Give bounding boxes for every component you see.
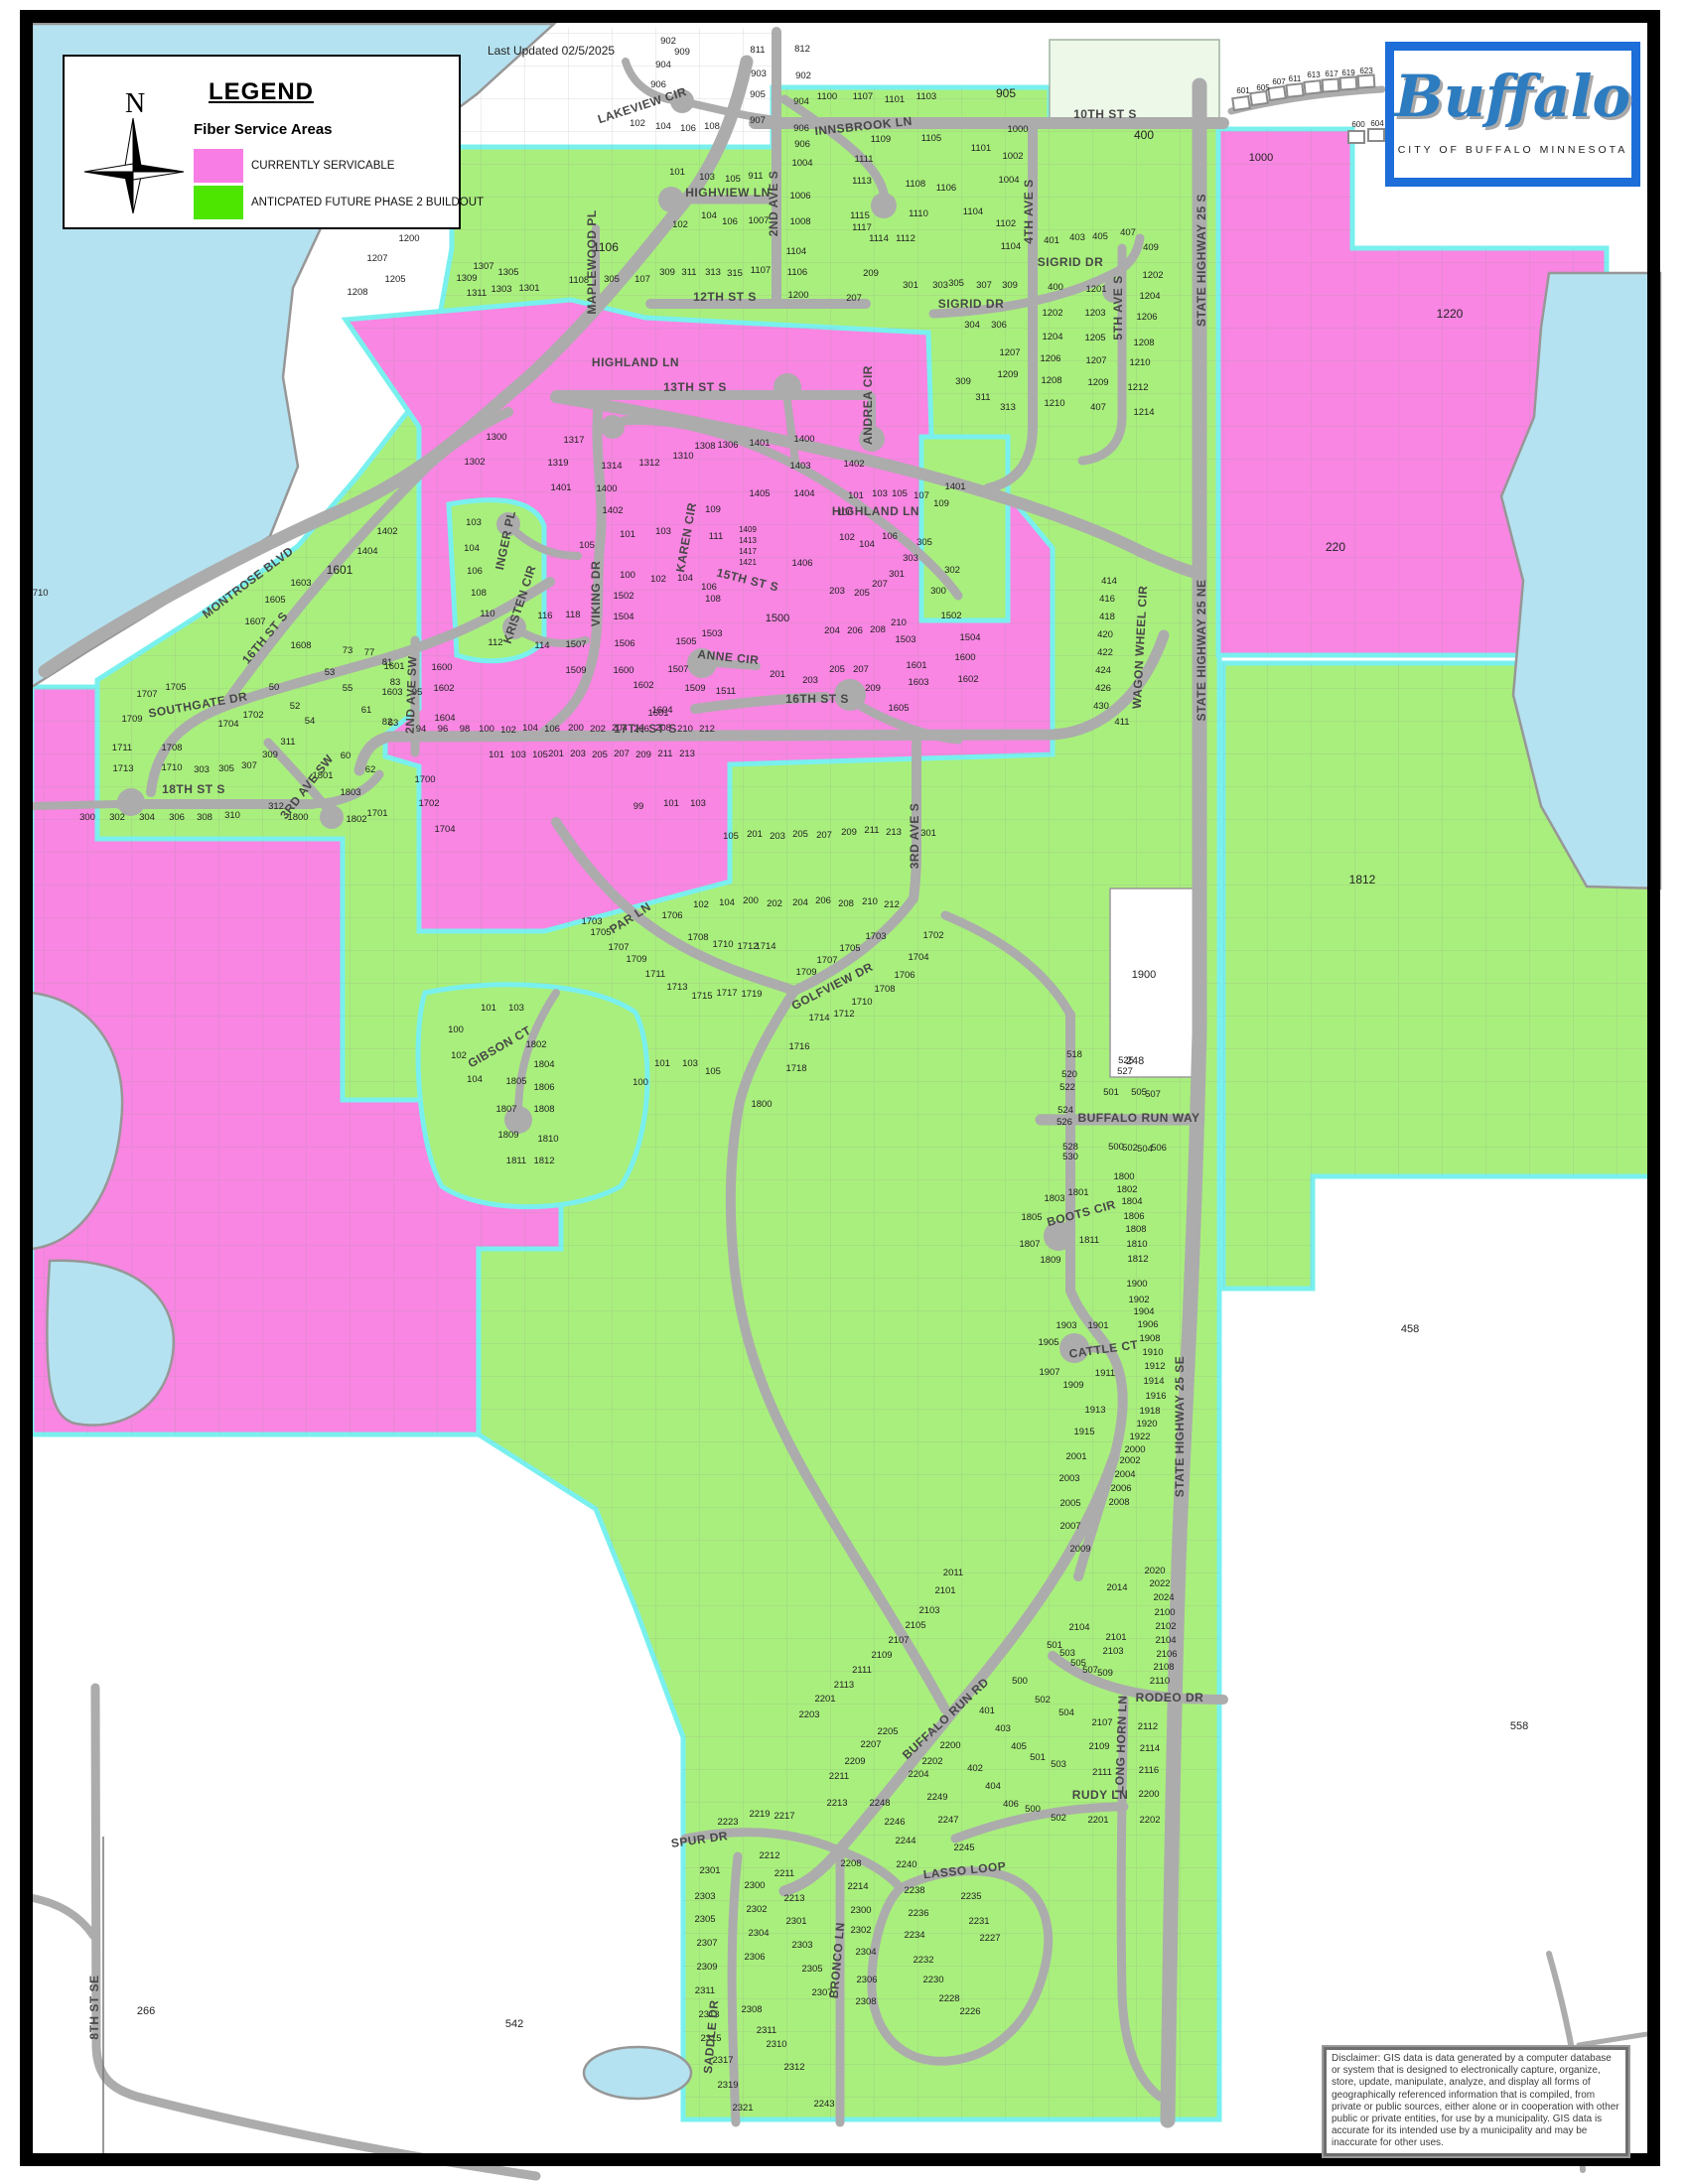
parcel-label: 1805: [1021, 1212, 1042, 1223]
parcel-label: 1117: [852, 222, 872, 233]
parcel-label: 401: [1044, 235, 1059, 246]
parcel-label: 1111: [854, 154, 873, 165]
parcel-label: 98: [460, 724, 471, 735]
parcel-label: 104: [719, 897, 735, 908]
parcel-label: 2243: [813, 2099, 834, 2110]
parcel-label: 1000: [1249, 152, 1273, 164]
parcel-label: 1101: [885, 94, 905, 105]
parcel-label: 522: [1059, 1082, 1075, 1093]
parcel-label: 1603: [381, 687, 402, 698]
parcel-label: 111: [709, 531, 723, 542]
parcel-label: 2311: [695, 1985, 715, 1996]
parcel-label: 118: [565, 610, 580, 620]
parcel-label: 1404: [793, 488, 814, 499]
area-white-pocket: [1110, 888, 1197, 1077]
parcel-label: 100: [620, 570, 635, 581]
parcel-label: 102: [630, 118, 645, 129]
parcel-label: 313: [705, 267, 721, 278]
parcel-label: 301: [903, 280, 918, 291]
parcel-label: 1802: [525, 1039, 546, 1050]
parcel-label: 2100: [1154, 1607, 1175, 1618]
parcel-label: 1812: [533, 1156, 554, 1166]
parcel-label: 1709: [121, 714, 142, 725]
parcel-label: 1207: [999, 347, 1020, 358]
parcel-label: 104: [522, 723, 538, 734]
parcel-label: 101: [481, 1003, 496, 1014]
parcel-label: 1406: [791, 558, 812, 569]
street-label: STATE HIGHWAY 25 NE: [1195, 579, 1208, 721]
parcel-label: 1602: [957, 674, 978, 685]
parcel-label: 1309: [456, 273, 477, 284]
street-label: SIGRID DR: [938, 297, 1005, 311]
parcel-label: 62: [365, 764, 376, 775]
parcel-label: 2211: [829, 1771, 849, 1782]
parcel-label: 1214: [1133, 407, 1154, 418]
parcel-label: 1710: [27, 588, 48, 599]
parcel-label: 206: [847, 625, 863, 636]
parcel-label: 73: [343, 645, 353, 656]
parcel-label: 248: [1126, 1055, 1144, 1067]
parcel-label: 1311: [467, 288, 487, 299]
parcel-label: 305: [218, 763, 234, 774]
parcel-label: 1114: [869, 233, 889, 244]
parcel-label: 905: [750, 89, 766, 100]
parcel-label: 2014: [1106, 1582, 1127, 1593]
legend-label-future: ANTICPATED FUTURE PHASE 2 BUILDOUT: [251, 197, 484, 208]
parcel-label: 220: [1326, 540, 1345, 554]
parcel-label: 103: [466, 517, 482, 528]
parcel-label: 103: [872, 488, 888, 499]
parcel-label: 600: [1351, 120, 1365, 129]
parcel-label: 2219: [749, 1809, 770, 1820]
parcel-label: 1717: [716, 988, 737, 999]
parcel-label: 1704: [217, 719, 238, 730]
parcel-label: 2007: [1059, 1521, 1080, 1532]
parcel-label: 1901: [1087, 1320, 1108, 1331]
parcel-label: 1401: [944, 481, 965, 492]
parcel-label: 1916: [1145, 1391, 1166, 1402]
parcel-label: 1705: [165, 682, 186, 693]
parcel-label: 2217: [774, 1811, 794, 1822]
parcel-label: 1706: [894, 970, 914, 981]
parcel-label: 105: [579, 540, 595, 551]
parcel-label: 1209: [1087, 377, 1108, 388]
street-label: VIKING DR: [589, 561, 603, 627]
parcel-label: 501: [1030, 1752, 1046, 1763]
parcel-label: 812: [794, 44, 810, 55]
parcel-label: 1109: [871, 134, 891, 145]
parcel-label: 2321: [732, 2103, 753, 2114]
parcel-label: 1913: [1084, 1405, 1105, 1416]
parcel-label: 1714: [755, 941, 775, 952]
parcel-label: 1312: [638, 458, 659, 469]
parcel-label: 1705: [590, 927, 611, 938]
parcel-label: 101: [654, 1058, 670, 1069]
street-label: 12TH ST S: [693, 290, 757, 304]
parcel-label: 1702: [418, 798, 439, 809]
parcel-label: 2308: [855, 1996, 876, 2007]
parcel-label: 2238: [904, 1885, 924, 1896]
parcel-label: 2245: [953, 1843, 974, 1853]
parcel-label: 201: [548, 749, 564, 759]
parcel-label: 1413: [739, 536, 757, 545]
parcel-label: 1317: [563, 435, 584, 446]
parcel-label: 904: [793, 96, 809, 107]
parcel-label: 1004: [998, 175, 1019, 186]
parcel-label: 201: [747, 829, 763, 840]
pond-south: [584, 2047, 691, 2099]
parcel-label: 903: [751, 68, 767, 79]
parcel-label: 106: [680, 123, 696, 134]
parcel-label: 101: [489, 750, 504, 760]
parcel-label: 1706: [661, 910, 682, 921]
parcel-label: 619: [1341, 68, 1355, 77]
parcel-label: 212: [884, 899, 900, 910]
parcel-label: 1503: [701, 628, 722, 639]
parcel-label: 1808: [533, 1104, 554, 1115]
parcel-label: 500: [1012, 1676, 1028, 1687]
parcel-label: 54: [305, 716, 316, 727]
parcel-label: 2005: [1059, 1498, 1080, 1509]
disclaimer-box: Disclaimer: GIS data is data generated b…: [1324, 2047, 1628, 2156]
parcel-label: 601: [1236, 86, 1250, 95]
parcel-label: 1601: [327, 563, 353, 577]
parcel-label: 509: [1097, 1668, 1113, 1679]
parcel-label: 1804: [1121, 1196, 1142, 1207]
parcel-label: 210: [862, 896, 878, 907]
parcel-label: 2208: [840, 1858, 861, 1869]
parcel-label: 266: [137, 2005, 155, 2017]
parcel-label: 213: [679, 749, 695, 759]
parcel-label: 2200: [1138, 1789, 1159, 1800]
street-label: 17TH ST S: [614, 722, 677, 736]
parcel-label: 2248: [869, 1798, 890, 1809]
parcel-label: 1306: [717, 440, 738, 451]
parcel-label: 1319: [547, 458, 568, 469]
parcel-label: 1006: [789, 191, 810, 202]
street-label: 2ND AVE S: [767, 171, 780, 237]
parcel-label: 2309: [696, 1962, 717, 1973]
parcel-label: 1812: [1349, 873, 1376, 887]
parcel-label: 400: [1048, 282, 1063, 293]
map-canvas[interactable]: 9029049069091021041061088118129039029059…: [0, 0, 1688, 2184]
parcel-label: 104: [464, 543, 480, 554]
parcel-label: 2200: [939, 1740, 960, 1751]
parcel-label: 1718: [785, 1063, 806, 1074]
parcel-label: 1104: [1001, 241, 1021, 252]
parcel-label: 2020: [1144, 1566, 1165, 1576]
parcel-label: 1711: [645, 969, 665, 980]
parcel-label: 1205: [384, 274, 405, 285]
parcel-label: 1900: [1132, 969, 1156, 981]
parcel-label: 1800: [751, 1099, 772, 1110]
parcel-label: 1600: [431, 662, 452, 673]
parcel-label: 61: [361, 705, 372, 716]
parcel-label: 1713: [666, 982, 687, 993]
parcel-label: 207: [872, 579, 888, 590]
parcel-label: 1100: [817, 91, 837, 102]
parcel-label: 1113: [852, 176, 872, 187]
parcel-label: 303: [932, 280, 948, 291]
street-label: ANDREA CIR: [861, 365, 875, 445]
parcel-label: 1115: [850, 210, 870, 221]
street-label: 3RD AVE S: [908, 803, 921, 870]
parcel-label: 208: [870, 624, 886, 635]
parcel-label: 204: [824, 625, 840, 636]
parcel-label: 1707: [136, 689, 157, 700]
parcel-label: 2111: [1092, 1767, 1112, 1778]
parcel-label: 1102: [996, 218, 1016, 229]
parcel-label: 105: [725, 174, 741, 185]
parcel-label: 507: [1082, 1665, 1098, 1676]
parcel-label: 1417: [739, 547, 757, 556]
parcel-label: 2207: [860, 1739, 881, 1750]
parcel-label: 94: [416, 724, 427, 735]
parcel-label: 424: [1095, 665, 1111, 676]
parcel-label: 1608: [290, 640, 311, 651]
parcel-label: 1700: [414, 774, 435, 785]
parcel-label: 1204: [1139, 291, 1160, 302]
parcel-label: 1702: [242, 710, 263, 721]
street-label: RODEO DR: [1136, 1691, 1204, 1705]
parcel-label: 2213: [783, 1893, 804, 1904]
parcel-label: 409: [1143, 242, 1159, 253]
street-label: 10TH ST S: [1073, 107, 1137, 121]
parcel-label: 501: [1103, 1087, 1119, 1098]
parcel-label: 2307: [696, 1938, 717, 1949]
parcel-label: 1200: [398, 233, 419, 244]
parcel-label: 2107: [1091, 1717, 1112, 1728]
parcel-label: 315: [727, 268, 743, 279]
parcel-label: 902: [660, 36, 676, 47]
parcel-label: 209: [865, 683, 881, 694]
parcel-label: 530: [1062, 1152, 1078, 1162]
parcel-label: 309: [1002, 280, 1018, 291]
parcel-label: 1303: [491, 284, 511, 295]
parcel-label: 2312: [783, 2062, 804, 2073]
parcel-label: 1401: [550, 482, 571, 493]
parcel-label: 1601: [906, 660, 926, 671]
parcel-label: 200: [743, 895, 759, 906]
parcel-label: 1002: [1002, 151, 1023, 162]
parcel-label: 2301: [699, 1865, 720, 1876]
parcel-label: 205: [792, 829, 808, 840]
parcel-label: 1719: [741, 989, 762, 1000]
parcel-label: 52: [290, 701, 301, 712]
parcel-label: 1600: [613, 665, 633, 676]
parcel-label: 1511: [716, 686, 736, 697]
parcel-label: 100: [479, 724, 494, 735]
parcel-label: 1507: [667, 664, 688, 675]
parcel-label: 558: [1510, 1720, 1528, 1732]
parcel-label: 1108: [906, 179, 925, 190]
parcel-label: 1903: [1055, 1320, 1076, 1331]
parcel-label: 2102: [1155, 1621, 1176, 1632]
parcel-label: 2104: [1155, 1635, 1176, 1646]
logo-wordmark: Buffalo: [1394, 51, 1631, 142]
last-updated-text: Last Updated 02/5/2025: [467, 44, 635, 58]
parcel-label: 623: [1359, 67, 1373, 75]
parcel-label: 2211: [774, 1868, 794, 1879]
parcel-label: 309: [955, 376, 971, 387]
parcel-label: 63: [388, 718, 399, 729]
parcel-label: 1709: [626, 954, 646, 965]
street-label: 5TH AVE S: [1111, 275, 1125, 340]
parcel-label: 1708: [687, 932, 708, 943]
parcel-label: 1206: [1040, 353, 1060, 364]
parcel-label: 1802: [1116, 1184, 1137, 1195]
parcel-label: 106: [544, 724, 560, 735]
parcel-label: 404: [985, 1781, 1001, 1792]
legend-item-serviceable: CURRENTLY SERVICABLE: [194, 148, 394, 184]
parcel-label: 1806: [533, 1082, 554, 1093]
parcel-label: 1710: [161, 762, 182, 773]
parcel-label: 2113: [834, 1680, 854, 1691]
parcel-label: 101: [620, 529, 635, 540]
parcel-label: 2305: [801, 1964, 822, 1975]
street-label: HIGHLAND LN: [832, 504, 919, 518]
parcel-label: 201: [770, 669, 785, 680]
parcel-label: 1110: [909, 208, 928, 219]
parcel-label: 1220: [1437, 307, 1464, 321]
parcel-label: 2308: [741, 2004, 762, 2015]
parcel-label: 108: [471, 588, 487, 599]
parcel-label: 1506: [614, 638, 634, 649]
parcel-label: 200: [568, 723, 584, 734]
parcel-label: 2213: [826, 1798, 847, 1809]
parcel-label: 1400: [793, 434, 814, 445]
parcel-label: 811: [750, 45, 765, 56]
parcel-label: 2112: [1138, 1721, 1158, 1732]
parcel-label: 1806: [1123, 1211, 1144, 1222]
parcel-label: 611: [1289, 74, 1302, 83]
parcel-label: 50: [269, 682, 280, 693]
parcel-label: 210: [677, 724, 693, 735]
parcel-label: 407: [1120, 227, 1136, 238]
parcel-label: 1106: [936, 183, 956, 194]
parcel-label: 309: [659, 267, 675, 278]
parcel-label: 1008: [789, 216, 810, 227]
parcel-label: 1605: [888, 703, 909, 714]
parcel-label: 1603: [290, 578, 311, 589]
parcel-label: 2116: [1139, 1765, 1159, 1776]
parcel-label: 1808: [1125, 1224, 1146, 1235]
parcel-label: 2230: [922, 1975, 943, 1985]
parcel-label: 1107: [751, 265, 771, 276]
parcel-label: 1801: [1067, 1187, 1088, 1198]
parcel-label: 604: [1370, 119, 1384, 128]
parcel-label: 2305: [694, 1914, 715, 1925]
parcel-label: 1904: [1133, 1306, 1154, 1317]
parcel-label: 2002: [1119, 1455, 1140, 1466]
parcel-label: 102: [693, 899, 709, 910]
parcel-label: 96: [438, 724, 449, 735]
parcel-label: 207: [853, 664, 869, 675]
parcel-label: 1600: [954, 652, 975, 663]
parcel-label: 2103: [918, 1605, 939, 1616]
parcel-label: 2107: [888, 1635, 909, 1646]
parcel-label: 1212: [1127, 382, 1148, 393]
parcel-label: 1400: [596, 483, 617, 494]
parcel-label: 1812: [1127, 1254, 1148, 1265]
parcel-label: 1103: [916, 91, 936, 102]
parcel-label: 1101: [971, 143, 991, 154]
parcel-label: 520: [1061, 1069, 1077, 1080]
parcel-label: 1207: [366, 253, 387, 264]
parcel-label: 1302: [464, 457, 485, 468]
legend-swatch-green: [194, 186, 243, 219]
parcel-label: 414: [1101, 576, 1117, 587]
area-green-gibson-pocket: [418, 985, 647, 1207]
parcel-label: 1809: [497, 1130, 518, 1141]
parcel-label: 524: [1057, 1105, 1073, 1116]
street-label: 16TH ST S: [785, 692, 849, 706]
parcel-label: 1710: [851, 997, 872, 1008]
parcel-label: 1707: [816, 955, 837, 966]
parcel-label: 209: [841, 827, 857, 838]
parcel-label: 1308: [694, 441, 715, 452]
parcel-label: 2106: [1156, 1649, 1177, 1660]
parcel-label: 2109: [871, 1650, 892, 1661]
parcel-label: 305: [916, 537, 932, 548]
legend-title: LEGEND: [209, 78, 457, 106]
parcel-label: 99: [633, 801, 644, 812]
parcel-label: 1906: [1137, 1319, 1158, 1330]
parcel-label: 2234: [904, 1930, 924, 1941]
parcel-label: 2008: [1108, 1497, 1129, 1508]
parcel-label: 518: [1066, 1049, 1082, 1060]
parcel-label: 1601: [383, 661, 404, 672]
parcel-label: 305: [948, 278, 964, 289]
parcel-label: 107: [914, 490, 929, 501]
parcel-label: 458: [1401, 1323, 1419, 1335]
parcel-label: 526: [1056, 1117, 1072, 1128]
parcel-label: 1602: [633, 680, 653, 691]
parcel-label: 401: [979, 1706, 995, 1716]
parcel-label: 411: [1114, 717, 1129, 728]
parcel-label: 2302: [850, 1925, 871, 1936]
parcel-label: 101: [663, 798, 679, 809]
parcel-label: 303: [194, 764, 210, 775]
parcel-label: 2306: [744, 1952, 765, 1963]
parcel-label: 902: [795, 70, 811, 81]
parcel-label: 2201: [1087, 1815, 1108, 1826]
parcel-label: 1918: [1139, 1406, 1160, 1417]
parcel-label: 1509: [565, 665, 586, 676]
parcel-label: 101: [848, 490, 864, 501]
parcel-label: 2022: [1149, 1578, 1170, 1589]
parcel-label: 209: [863, 268, 879, 279]
parcel-label: 1804: [533, 1059, 554, 1070]
parcel-label: 1907: [1039, 1367, 1059, 1378]
parcel-label: 1402: [376, 526, 397, 537]
parcel-label: 114: [534, 640, 549, 651]
parcel-label: 103: [699, 172, 715, 183]
parcel-label: 2310: [766, 2039, 786, 2050]
parcel-label: 1702: [922, 930, 943, 941]
parcel-label: 403: [1069, 232, 1085, 243]
parcel-label: 302: [944, 565, 960, 576]
parcel-label: 206: [815, 895, 831, 906]
parcel-label: 607: [1272, 77, 1286, 86]
parcel-label: 1402: [602, 505, 623, 516]
parcel-label: 202: [767, 898, 782, 909]
parcel-label: 416: [1099, 594, 1115, 605]
street-label: 2ND AVE SW: [403, 655, 420, 734]
parcel-label: 2109: [1088, 1741, 1109, 1752]
parcel-label: 1421: [739, 558, 757, 567]
parcel-label: 208: [838, 898, 854, 909]
